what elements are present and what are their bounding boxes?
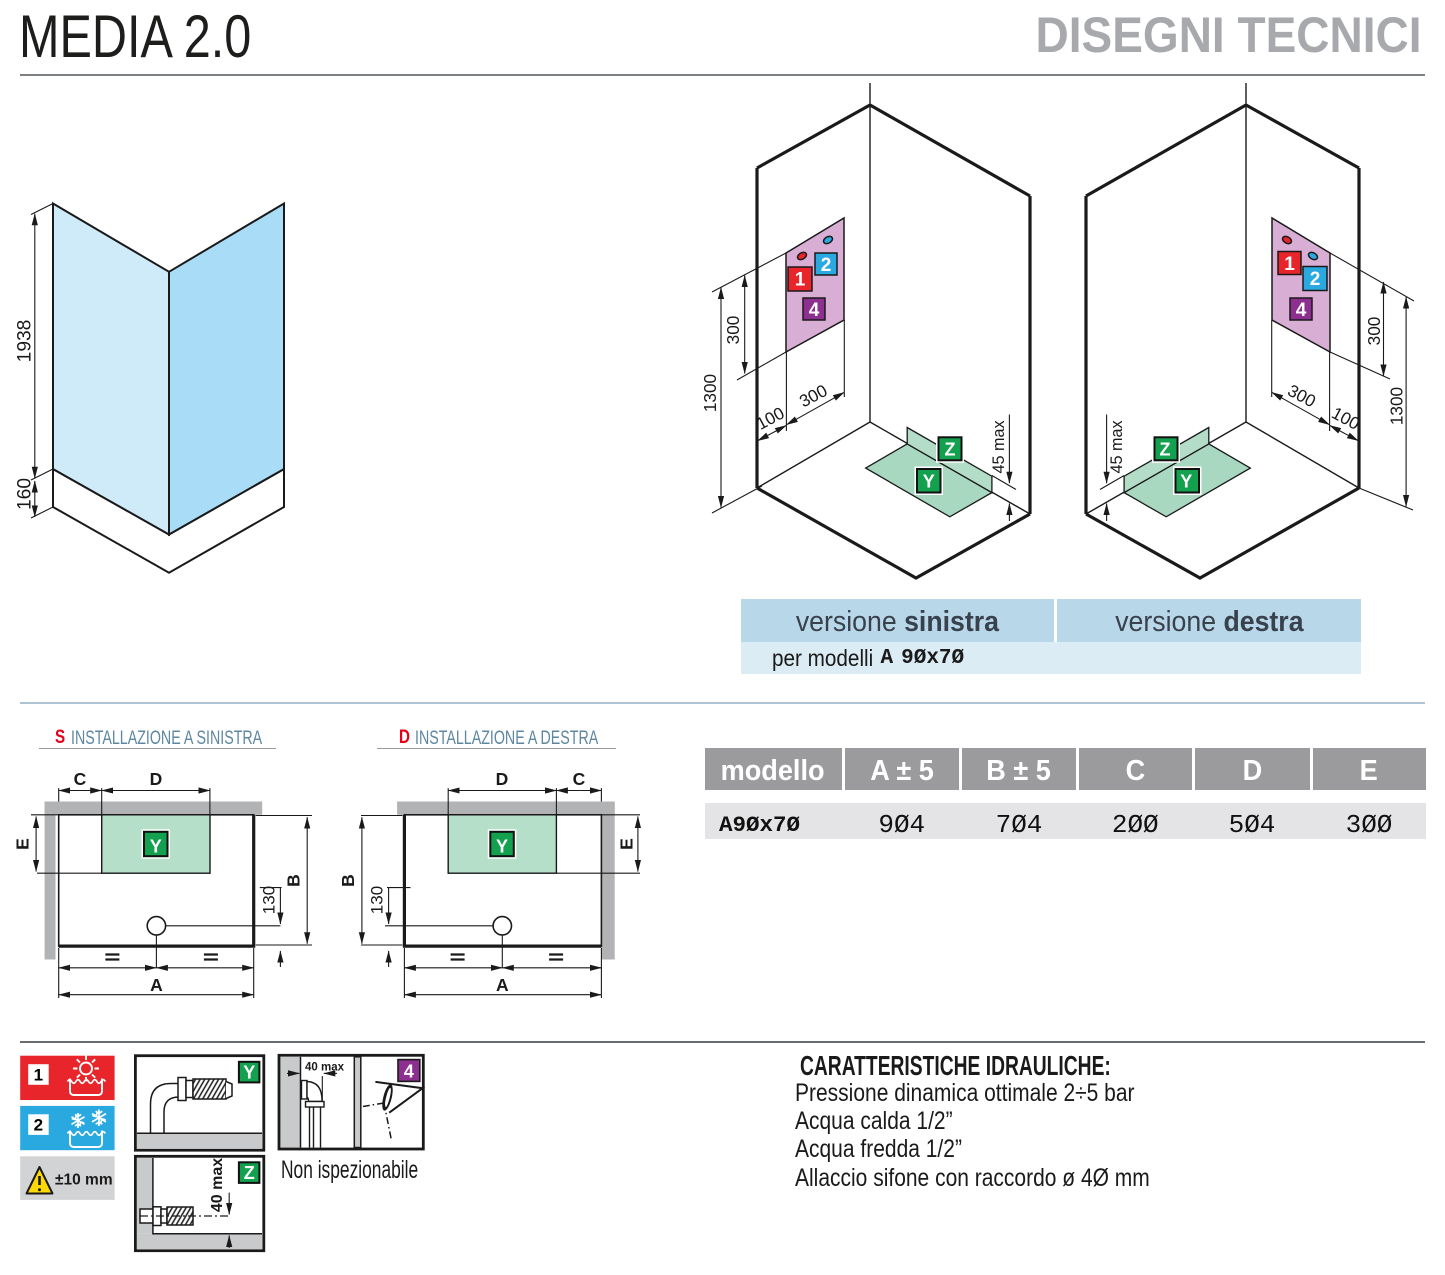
svg-text:±10 mm: ±10 mm — [55, 1172, 113, 1189]
svg-text:300: 300 — [796, 380, 831, 411]
svg-text:Y: Y — [1180, 471, 1192, 491]
svg-text:Y: Y — [150, 837, 162, 857]
svg-text:45 max: 45 max — [990, 420, 1008, 473]
svg-text:2: 2 — [1310, 269, 1321, 290]
svg-text:2: 2 — [821, 255, 832, 276]
svg-text:1938: 1938 — [15, 320, 36, 363]
svg-text:E: E — [617, 838, 637, 850]
svg-text:45 max: 45 max — [1108, 420, 1126, 473]
svg-text:C: C — [573, 769, 586, 789]
svg-text:1300: 1300 — [1386, 387, 1406, 425]
svg-text:A: A — [496, 975, 509, 995]
svg-text:300: 300 — [1364, 317, 1384, 346]
svg-text:4: 4 — [809, 300, 820, 321]
svg-text:300: 300 — [1284, 380, 1319, 411]
svg-text:Z: Z — [1160, 439, 1171, 459]
svg-text:A: A — [150, 975, 163, 995]
svg-text:B: B — [338, 874, 358, 887]
svg-text:1: 1 — [795, 270, 806, 291]
svg-text:40 max: 40 max — [209, 1158, 226, 1212]
svg-text:4: 4 — [1296, 300, 1307, 321]
svg-text:1: 1 — [1284, 254, 1295, 275]
svg-text:2: 2 — [34, 1116, 43, 1135]
svg-text:Y: Y — [243, 1063, 255, 1083]
svg-text:B: B — [284, 874, 304, 887]
svg-text:130: 130 — [368, 886, 387, 914]
svg-text:Y: Y — [496, 837, 508, 857]
svg-text:Z: Z — [945, 439, 956, 459]
svg-text:C: C — [74, 769, 87, 789]
svg-text:Z: Z — [244, 1163, 255, 1183]
svg-text:40 max: 40 max — [305, 1062, 345, 1074]
svg-text:4: 4 — [404, 1062, 414, 1082]
svg-text:E: E — [13, 838, 33, 850]
svg-text:D: D — [150, 769, 163, 789]
svg-text:D: D — [496, 769, 509, 789]
svg-text:130: 130 — [260, 886, 279, 914]
svg-text:160: 160 — [15, 478, 36, 510]
svg-text:1: 1 — [34, 1066, 43, 1085]
svg-text:Y: Y — [923, 471, 935, 491]
svg-text:1300: 1300 — [700, 374, 720, 412]
svg-text:300: 300 — [723, 316, 743, 345]
